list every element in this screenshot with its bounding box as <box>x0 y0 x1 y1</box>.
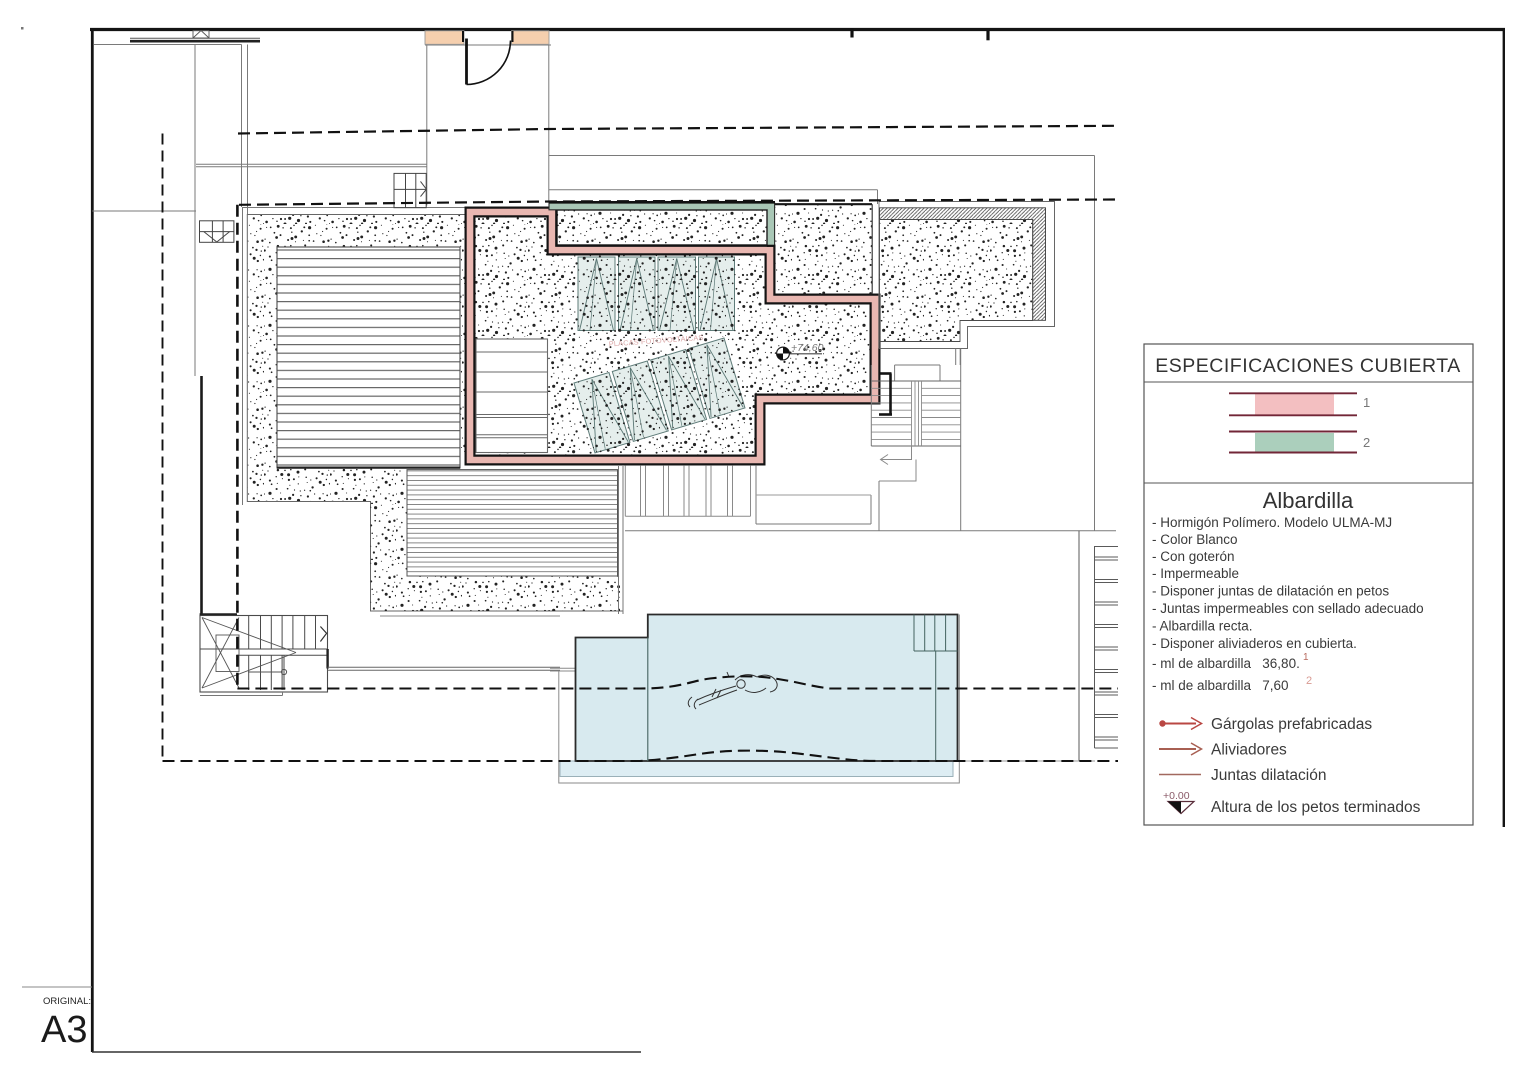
svg-text:+74,60: +74,60 <box>791 342 824 354</box>
svg-text:1: 1 <box>1363 395 1370 410</box>
svg-text:ORIGINAL:: ORIGINAL: <box>43 996 91 1007</box>
svg-text:- Hormigón Polímero. Modelo UL: - Hormigón Polímero. Modelo ULMA-MJ <box>1152 515 1392 530</box>
svg-text:- Juntas impermeables con sell: - Juntas impermeables con sellado adecua… <box>1152 601 1424 616</box>
svg-text:Juntas dilatación: Juntas dilatación <box>1211 767 1326 784</box>
svg-text:Aliviadores: Aliviadores <box>1211 742 1287 759</box>
svg-text:Albardilla: Albardilla <box>1263 488 1354 513</box>
svg-text:- Con goterón: - Con goterón <box>1152 549 1235 564</box>
svg-text:- Albardilla recta.: - Albardilla recta. <box>1152 619 1253 634</box>
svg-text:2: 2 <box>1306 675 1312 687</box>
svg-text:- Color Blanco: - Color Blanco <box>1152 532 1238 547</box>
svg-text:Gárgolas prefabricadas: Gárgolas prefabricadas <box>1211 716 1372 733</box>
svg-text:Altura de los petos terminados: Altura de los petos terminados <box>1211 799 1421 816</box>
svg-text:A3: A3 <box>41 1009 87 1051</box>
svg-text:- Disponer aliviaderos en cubi: - Disponer aliviaderos en cubierta. <box>1152 636 1357 651</box>
svg-text:- Impermeable: - Impermeable <box>1152 566 1239 581</box>
svg-text:- Disponer juntas de dilatació: - Disponer juntas de dilatación en petos <box>1152 584 1389 599</box>
svg-text:+0.00: +0.00 <box>1163 790 1190 802</box>
svg-text:- ml de albardilla 36,80.: - ml de albardilla 36,80. <box>1152 656 1300 671</box>
svg-text:ESPECIFICACIONES CUBIERTA: ESPECIFICACIONES CUBIERTA <box>1155 355 1460 377</box>
svg-text:- ml de albardilla 7,60: - ml de albardilla 7,60 <box>1152 678 1289 693</box>
svg-text:2: 2 <box>1363 435 1370 450</box>
svg-text:1: 1 <box>1303 652 1309 663</box>
